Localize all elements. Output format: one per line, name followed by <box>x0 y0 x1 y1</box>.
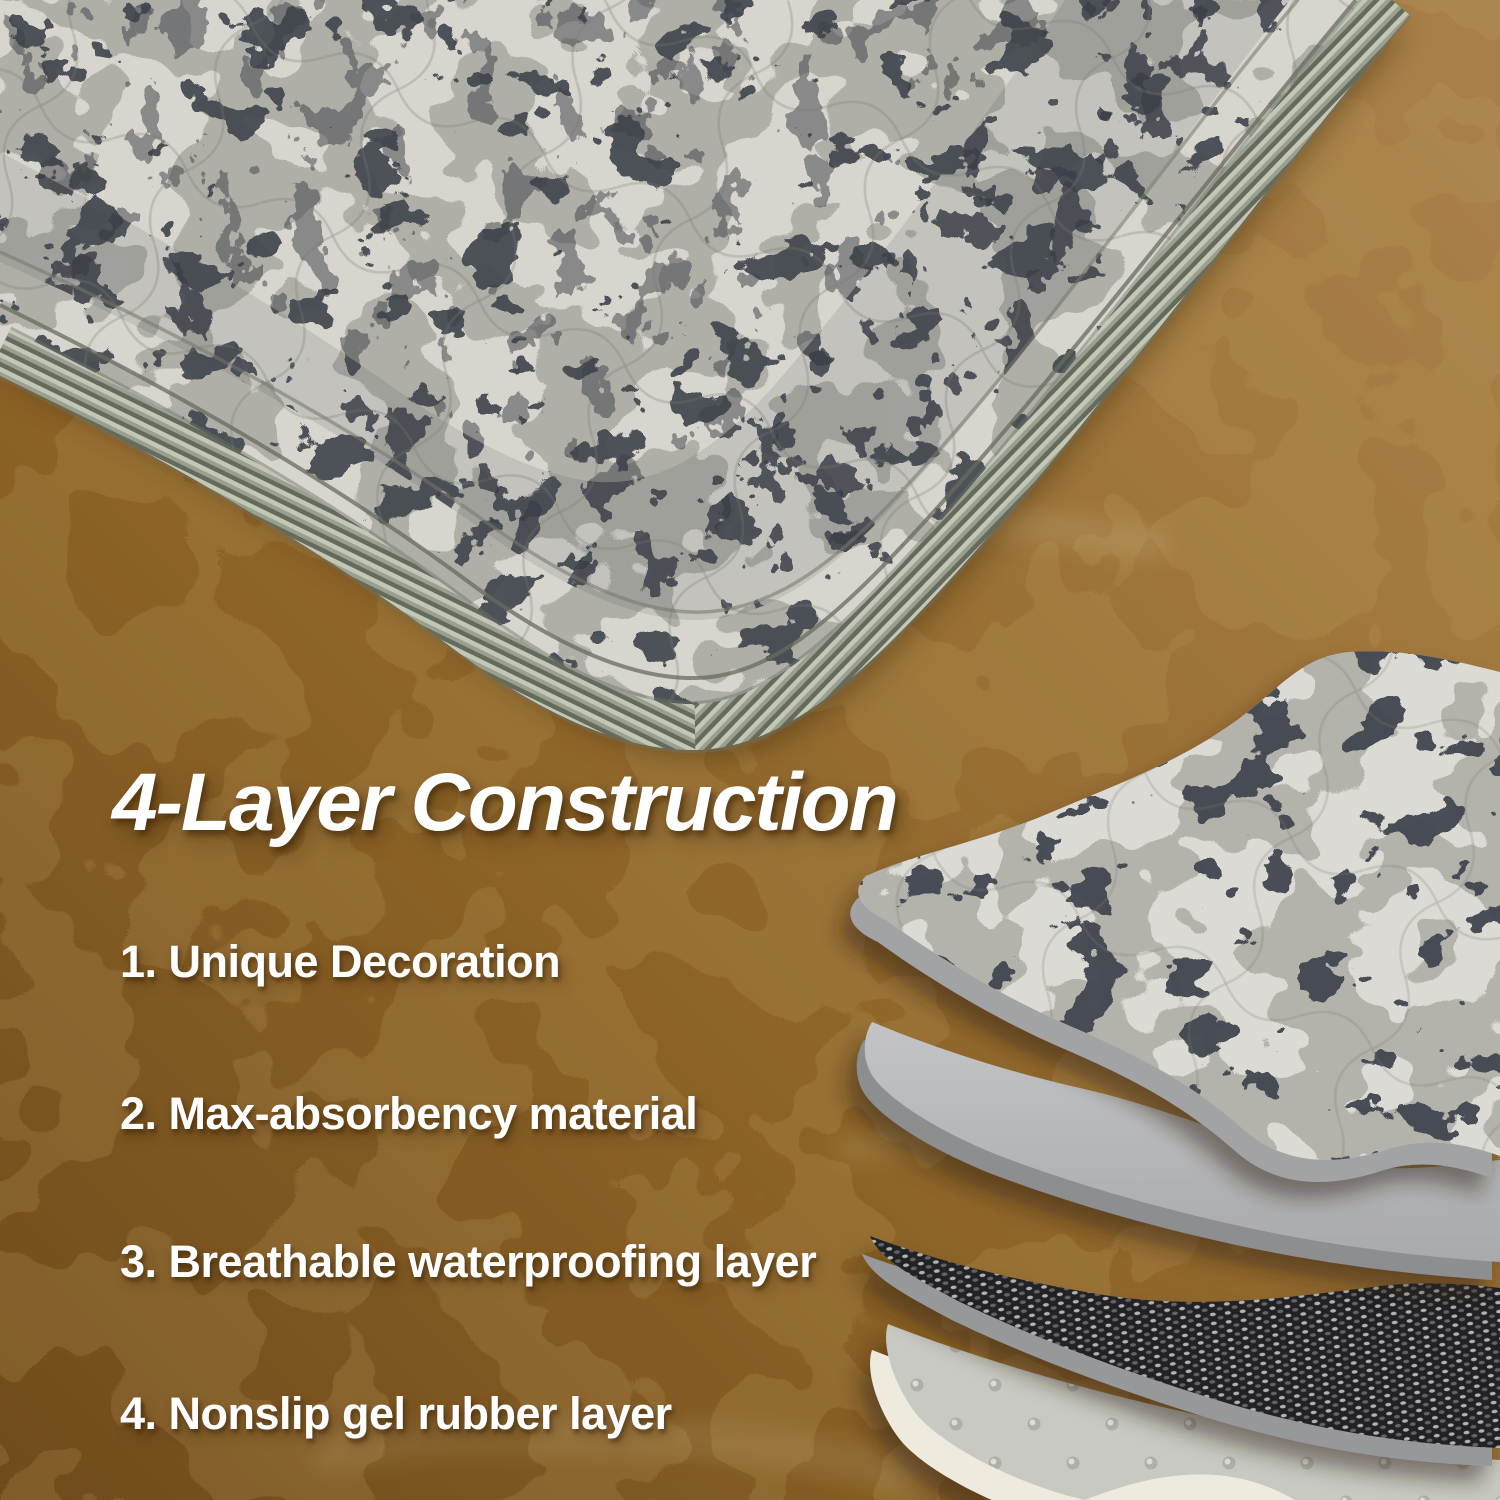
scene-graphic <box>0 0 1500 1500</box>
product-infographic: 4-Layer Construction 1. Unique Decoratio… <box>0 0 1500 1500</box>
